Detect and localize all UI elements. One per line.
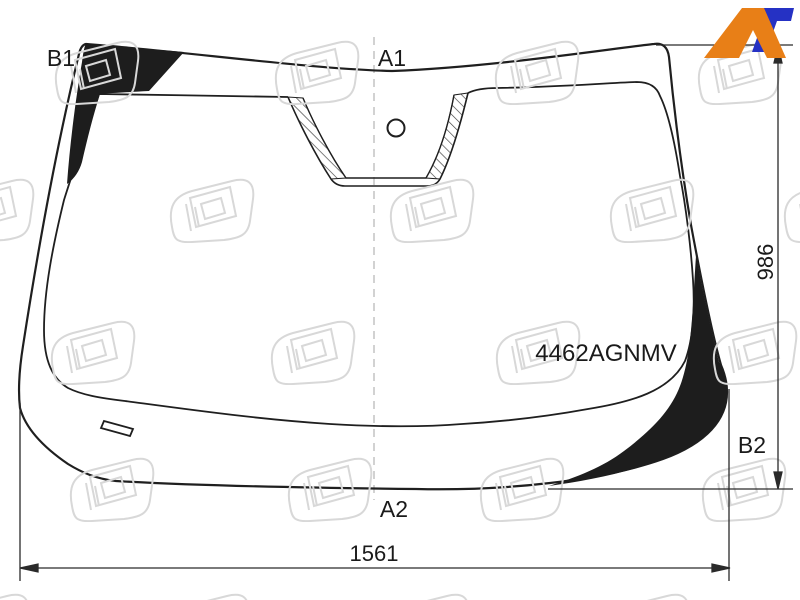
glass-inner-edge	[44, 82, 694, 426]
watermark-icon	[276, 42, 359, 104]
mirror-bracket-hatch-left	[288, 97, 346, 179]
watermark-icon	[703, 459, 786, 521]
watermark-icon	[0, 180, 33, 242]
sensor-hole	[388, 120, 405, 137]
watermark-icon	[166, 595, 249, 600]
watermark-icon	[481, 459, 564, 521]
windshield-diagram: B1 A1 A2 B2 986 1561 4462AGNMV	[0, 0, 800, 600]
watermark-icon	[171, 180, 254, 242]
label-a1: A1	[378, 45, 406, 71]
watermark-icon	[289, 459, 372, 521]
arrow-down-icon	[774, 472, 782, 489]
label-b1: B1	[47, 45, 75, 71]
watermark-icon	[52, 322, 135, 384]
watermark-icon	[391, 180, 474, 242]
arrow-right-icon	[712, 564, 730, 572]
watermark-icon	[606, 595, 689, 600]
label-b2: B2	[738, 432, 766, 458]
watermark-icon	[785, 180, 800, 242]
dimension-height-value: 986	[753, 244, 778, 281]
watermark-icon	[496, 42, 579, 104]
watermark-icon	[714, 322, 797, 384]
arrow-left-icon	[20, 564, 38, 572]
windshield-diagram-page: B1 A1 A2 B2 986 1561 4462AGNMV	[0, 0, 800, 600]
mirror-bracket-hatch-right	[426, 93, 468, 179]
label-a2: A2	[380, 496, 408, 522]
glass-drawing	[19, 37, 727, 500]
dimension-width-value: 1561	[350, 541, 399, 566]
tint-band-top-left	[67, 44, 184, 184]
watermark-icon	[272, 322, 355, 384]
watermark-icon	[611, 180, 694, 242]
watermark-icon	[0, 595, 28, 600]
tint-band-right	[549, 256, 727, 486]
watermark-icon	[386, 595, 469, 600]
watermark-icon	[71, 459, 154, 521]
wiper-slot	[101, 421, 133, 436]
part-number: 4462AGNMV	[535, 340, 676, 367]
glass-outer-edge	[19, 44, 727, 489]
